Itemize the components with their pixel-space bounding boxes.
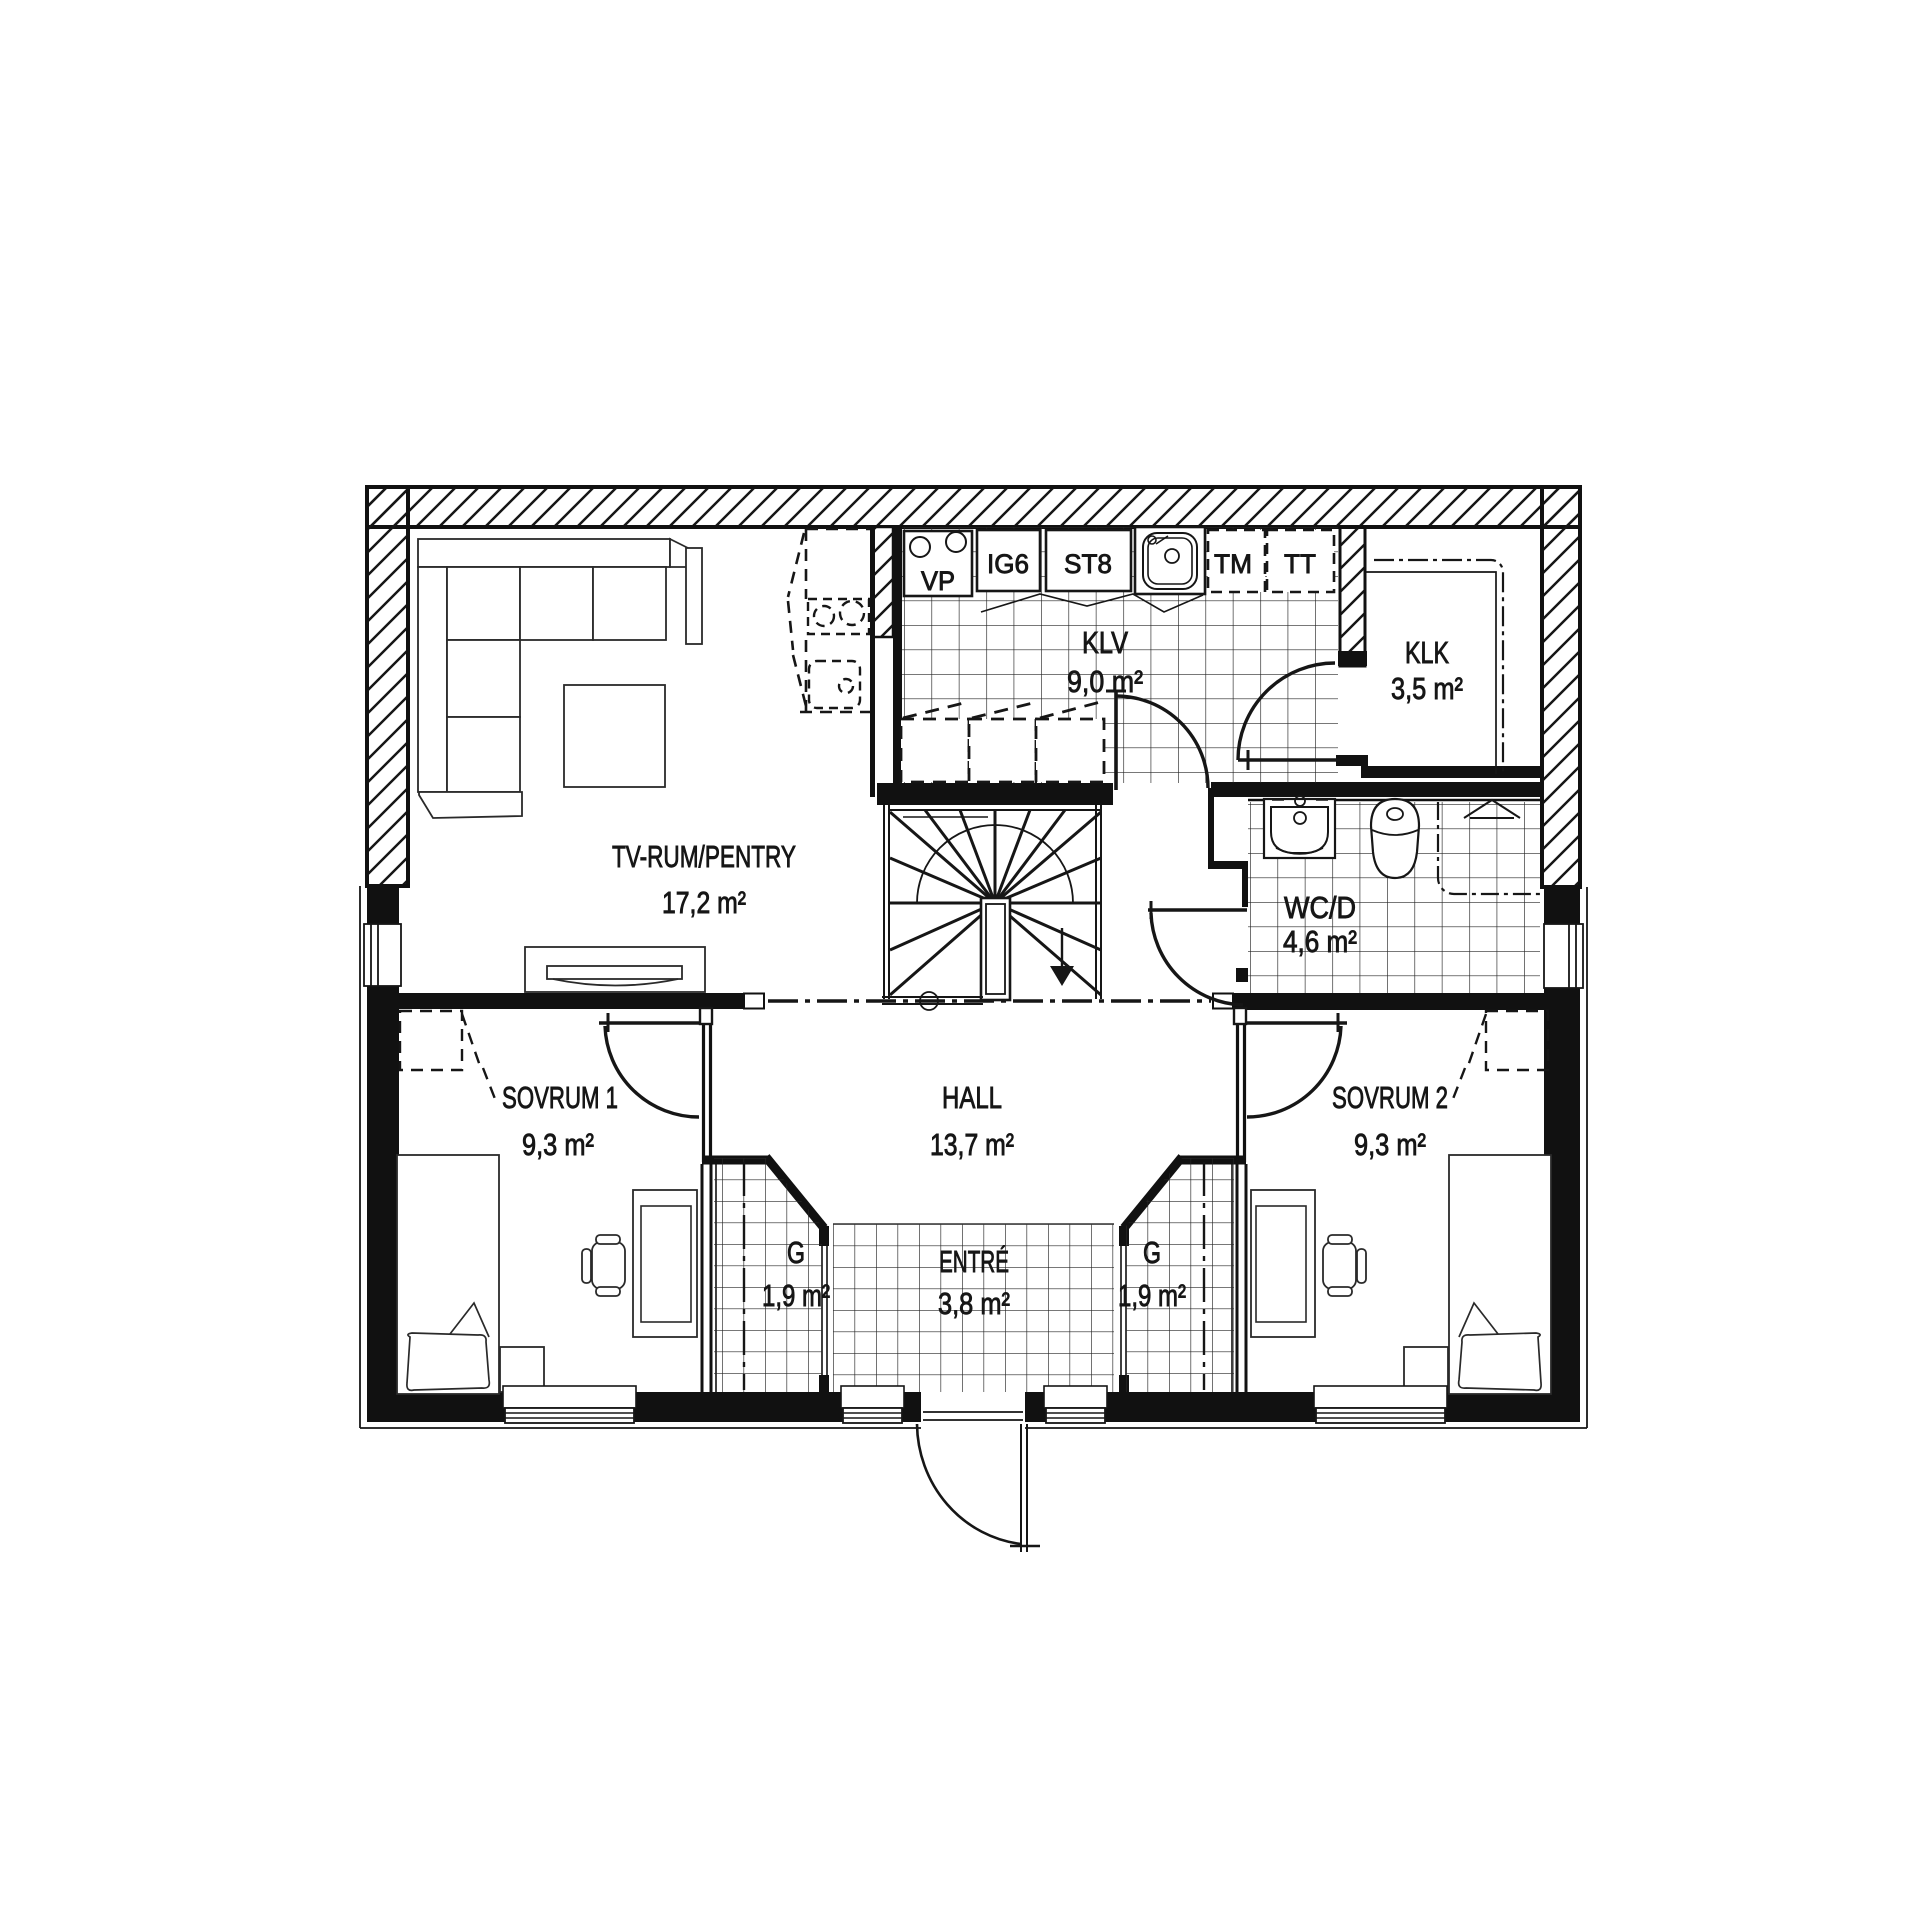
svg-text:G: G <box>787 1235 805 1270</box>
svg-text:KLV: KLV <box>1082 625 1128 660</box>
svg-text:9,3 m²: 9,3 m² <box>1354 1127 1426 1162</box>
svg-text:TV-RUM/PENTRY: TV-RUM/PENTRY <box>612 839 796 874</box>
svg-text:9,0 m²: 9,0 m² <box>1067 664 1143 699</box>
svg-text:IG6: IG6 <box>987 549 1029 579</box>
svg-text:17,2 m²: 17,2 m² <box>662 885 746 920</box>
svg-text:VP: VP <box>921 566 955 596</box>
svg-text:SOVRUM 2: SOVRUM 2 <box>1332 1080 1448 1115</box>
svg-text:SOVRUM 1: SOVRUM 1 <box>502 1080 618 1115</box>
svg-text:1,9 m²: 1,9 m² <box>1118 1278 1186 1313</box>
svg-text:HALL: HALL <box>942 1080 1002 1115</box>
svg-text:9,3 m²: 9,3 m² <box>522 1127 594 1162</box>
svg-text:KLK: KLK <box>1405 635 1449 670</box>
svg-text:G: G <box>1143 1235 1161 1270</box>
svg-text:TM: TM <box>1214 549 1252 579</box>
svg-text:3,8 m²: 3,8 m² <box>938 1286 1010 1321</box>
svg-text:3,5 m²: 3,5 m² <box>1391 671 1463 706</box>
svg-text:ST8: ST8 <box>1064 549 1112 579</box>
svg-text:1,9 m²: 1,9 m² <box>762 1278 830 1313</box>
svg-text:4,6 m²: 4,6 m² <box>1283 924 1357 959</box>
svg-text:ENTRÉ: ENTRÉ <box>939 1244 1009 1279</box>
svg-text:WC/D: WC/D <box>1284 890 1356 925</box>
svg-text:13,7 m²: 13,7 m² <box>930 1127 1014 1162</box>
svg-text:TT: TT <box>1284 549 1316 579</box>
